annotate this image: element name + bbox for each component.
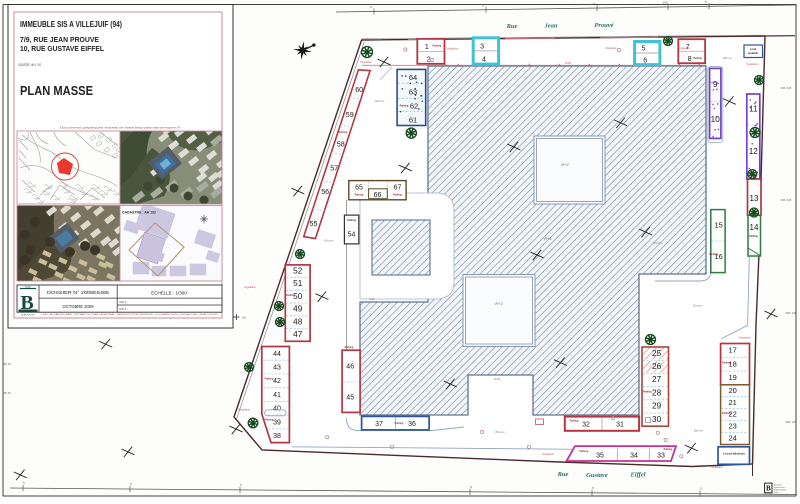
- svg-text:OCTOBRE 2009: OCTOBRE 2009: [62, 304, 94, 309]
- svg-text:Bitume: Bitume: [694, 428, 704, 432]
- svg-text:IND 1 :: IND 1 :: [120, 300, 128, 304]
- svg-text:51: 51: [293, 279, 303, 288]
- svg-text:35: 35: [596, 452, 604, 459]
- svg-text:105: 105: [792, 311, 797, 315]
- svg-text:Rue: Rue: [506, 23, 518, 30]
- svg-text:11: 11: [749, 105, 758, 114]
- svg-text:Végétation: Végétation: [747, 63, 760, 66]
- svg-text:62: 62: [410, 102, 418, 111]
- svg-text:58: 58: [337, 140, 345, 149]
- svg-text:12: 12: [749, 147, 759, 156]
- svg-text:Parking: Parking: [339, 131, 348, 134]
- svg-text:Végétation: Végétation: [360, 61, 373, 64]
- svg-text:105: 105: [787, 86, 792, 90]
- svg-text:36: 36: [408, 421, 416, 428]
- svg-text:37: 37: [375, 421, 383, 428]
- svg-text:105: 105: [792, 420, 797, 424]
- svg-text:8: 8: [688, 56, 692, 63]
- svg-text:Parking: Parking: [580, 450, 589, 453]
- svg-text:17: 17: [729, 346, 737, 355]
- svg-text:Végétation: Végétation: [605, 47, 618, 50]
- svg-text:Bitume: Bitume: [653, 241, 663, 245]
- svg-text:Parking: Parking: [347, 219, 356, 222]
- svg-text:43: 43: [273, 364, 281, 371]
- svg-text:Documents graphiques extraits: Documents graphiques extraits de www.bla…: [60, 126, 180, 130]
- svg-text:Bitume: Bitume: [495, 430, 505, 434]
- svg-text:41: 41: [273, 392, 281, 399]
- svg-text:28: 28: [652, 388, 662, 397]
- svg-text:100: 100: [242, 317, 247, 320]
- svg-text:40: 40: [273, 406, 281, 413]
- svg-text:61: 61: [409, 116, 417, 125]
- svg-text:R+1: R+1: [544, 236, 551, 241]
- svg-text:Parking: Parking: [345, 346, 354, 349]
- svg-text:42: 42: [273, 378, 281, 385]
- svg-text:Prouvé: Prouvé: [594, 22, 614, 29]
- svg-text:Végétation: Végétation: [739, 336, 752, 339]
- svg-text:poubelle: poubelle: [748, 52, 758, 55]
- svg-text:57: 57: [330, 164, 338, 173]
- svg-text:5.00: 5.00: [369, 297, 375, 301]
- svg-text:10, RUE GUSTAVE EIFFEL: 10, RUE GUSTAVE EIFFEL: [20, 44, 104, 53]
- svg-text:R+2: R+2: [561, 162, 569, 167]
- svg-text:33: 33: [657, 452, 665, 459]
- svg-text:44: 44: [273, 351, 281, 358]
- svg-text:30: 30: [652, 415, 662, 424]
- svg-text:47: 47: [293, 330, 303, 339]
- svg-text:Parking: Parking: [433, 44, 442, 47]
- svg-text:Parking: Parking: [286, 294, 295, 297]
- svg-text:59: 59: [346, 110, 354, 119]
- svg-text:DOSSIER N° 2009E5465: DOSSIER N° 2009E5465: [47, 290, 110, 295]
- svg-text:Bitume: Bitume: [693, 304, 703, 308]
- svg-text:66: 66: [374, 192, 382, 199]
- svg-text:27: 27: [652, 375, 662, 384]
- svg-text:Végétation: Végétation: [711, 466, 724, 469]
- svg-text:Parking: Parking: [400, 105, 409, 108]
- svg-text:CADASTRE : AH 192: CADASTRE : AH 192: [122, 210, 157, 215]
- svg-text:60: 60: [355, 85, 363, 94]
- svg-text:20.00: 20.00: [494, 377, 501, 381]
- svg-text:34: 34: [630, 452, 638, 459]
- svg-text:32: 32: [582, 422, 590, 429]
- svg-text:Parking: Parking: [709, 253, 718, 256]
- svg-text:46: 46: [346, 363, 354, 370]
- svg-text:38: 38: [273, 433, 281, 440]
- svg-text:Parking: Parking: [693, 57, 702, 60]
- svg-text:10: 10: [711, 115, 721, 124]
- svg-text:21: 21: [729, 398, 737, 407]
- svg-text:49: 49: [293, 305, 303, 314]
- svg-text:BLAY: BLAY: [25, 286, 31, 289]
- svg-text:7/9, RUE JEAN PROUVE: 7/9, RUE JEAN PROUVE: [20, 35, 99, 44]
- svg-text:IND 2 :: IND 2 :: [120, 307, 128, 311]
- svg-text:Bitume: Bitume: [375, 99, 385, 103]
- svg-text:54: 54: [348, 232, 356, 239]
- svg-text:Végétation: Végétation: [678, 47, 691, 50]
- svg-text:Parking: Parking: [722, 362, 731, 365]
- svg-text:19.80: 19.80: [565, 62, 572, 65]
- svg-text:13: 13: [750, 194, 759, 203]
- svg-text:R+2: R+2: [495, 301, 503, 306]
- svg-text:Paris: Paris: [774, 492, 778, 494]
- svg-text:52: 52: [293, 266, 303, 275]
- svg-text:56: 56: [321, 187, 329, 196]
- svg-text:Parking: Parking: [570, 420, 579, 423]
- svg-text:39: 39: [273, 419, 281, 426]
- svg-text:Végétation: Végétation: [244, 286, 257, 289]
- svg-text:Parking: Parking: [355, 194, 364, 197]
- svg-text:CADASTRE : AH n° 192: CADASTRE : AH n° 192: [18, 63, 41, 67]
- svg-text:100: 100: [662, 1, 667, 5]
- svg-text:63: 63: [409, 88, 417, 97]
- svg-text:105: 105: [787, 198, 792, 202]
- svg-text:29: 29: [652, 402, 662, 411]
- svg-text:4: 4: [482, 57, 486, 64]
- svg-text:© IGN - BD PARCELLAIRE - EXTRA: © IGN - BD PARCELLAIRE - EXTRAIT DU PLAN…: [40, 313, 219, 316]
- svg-text:Parking: Parking: [395, 422, 404, 425]
- svg-text:Bitume: Bitume: [723, 56, 733, 60]
- svg-text:PLAN MASSE: PLAN MASSE: [20, 83, 93, 98]
- svg-text:Eiffel: Eiffel: [629, 472, 645, 479]
- svg-text:67: 67: [394, 185, 402, 192]
- svg-text:14: 14: [750, 223, 759, 232]
- svg-text:24: 24: [729, 434, 737, 443]
- svg-text:Végétation: Végétation: [542, 453, 555, 456]
- svg-text:15: 15: [715, 221, 723, 230]
- svg-text:Local: Local: [750, 48, 757, 51]
- svg-text:45: 45: [346, 394, 354, 401]
- svg-text:ECHELLE : 1/300: ECHELLE : 1/300: [151, 291, 187, 296]
- svg-text:Rue: Rue: [557, 471, 569, 478]
- svg-text:65: 65: [355, 185, 363, 192]
- svg-text:Végétation: Végétation: [447, 48, 460, 51]
- svg-text:Végétation: Végétation: [238, 409, 251, 412]
- svg-text:31: 31: [616, 422, 624, 429]
- svg-text:6: 6: [643, 57, 647, 64]
- svg-text:19: 19: [729, 373, 737, 382]
- svg-text:Bitume: Bitume: [324, 239, 334, 243]
- svg-text:64: 64: [409, 73, 417, 82]
- svg-text:48: 48: [293, 317, 303, 326]
- svg-text:Parking: Parking: [265, 377, 274, 380]
- svg-text:25: 25: [652, 349, 662, 358]
- svg-text:Gustave: Gustave: [586, 472, 608, 479]
- svg-text:5: 5: [642, 46, 646, 53]
- svg-text:Parking: Parking: [749, 235, 758, 238]
- svg-text:Parking: Parking: [265, 419, 274, 422]
- svg-text:B: B: [766, 485, 771, 493]
- svg-text:23: 23: [729, 422, 737, 431]
- svg-text:Parking: Parking: [709, 81, 717, 84]
- svg-text:Parking: Parking: [664, 448, 673, 451]
- svg-text:Local déchets: Local déchets: [723, 452, 746, 456]
- svg-text:Parking: Parking: [393, 194, 402, 197]
- svg-text:55: 55: [310, 219, 318, 228]
- svg-text:Parking: Parking: [722, 412, 731, 415]
- svg-text:1: 1: [425, 44, 429, 51]
- svg-text:IMMEUBLE SIS A VILLEJUIF (94): IMMEUBLE SIS A VILLEJUIF (94): [20, 20, 122, 29]
- svg-text:3: 3: [480, 43, 484, 50]
- svg-text:26: 26: [652, 362, 662, 371]
- svg-text:Jean: Jean: [544, 23, 558, 30]
- svg-text:BLAY-FOLDEX: BLAY-FOLDEX: [21, 314, 35, 317]
- svg-text:Parking: Parking: [643, 391, 652, 394]
- svg-text:20: 20: [729, 386, 737, 395]
